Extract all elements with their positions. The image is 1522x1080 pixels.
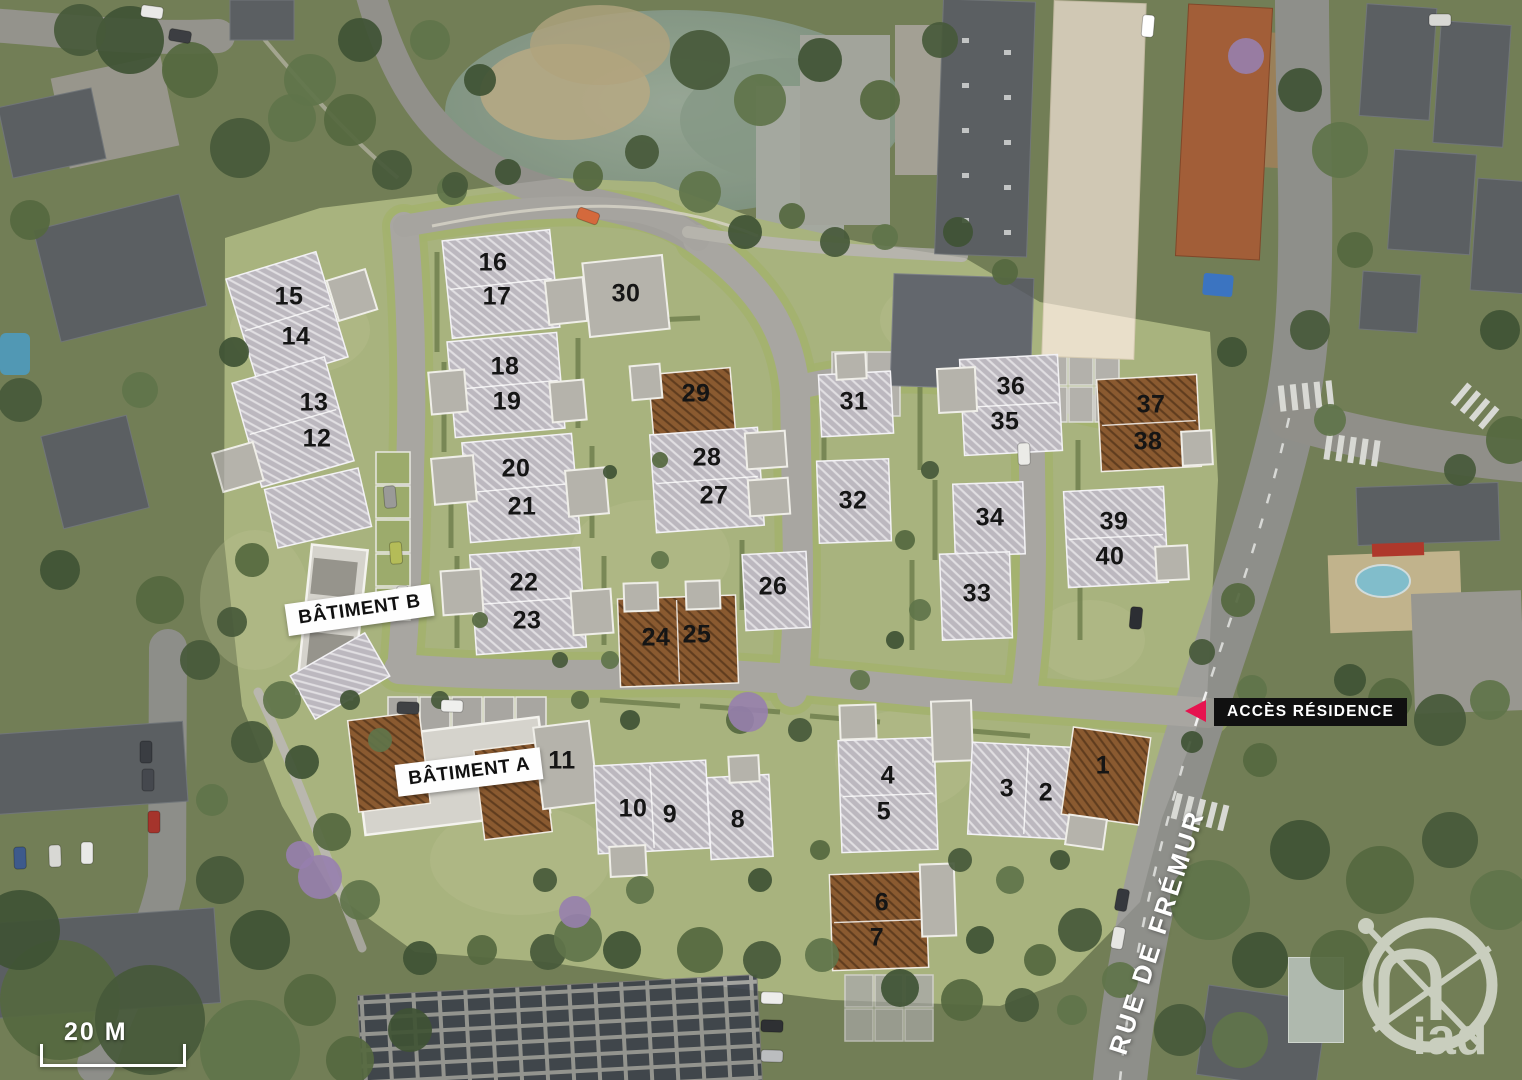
lot-marker-33: 33 bbox=[963, 582, 992, 607]
batiment-b-label: BÂTIMENT B bbox=[284, 584, 434, 636]
lot-marker-31: 31 bbox=[840, 390, 869, 415]
lot-marker-22: 22 bbox=[510, 571, 539, 596]
lot-marker-19: 19 bbox=[493, 390, 522, 415]
lot-marker-12: 12 bbox=[303, 427, 332, 452]
lot-marker-14: 14 bbox=[282, 325, 311, 350]
lot-marker-3: 3 bbox=[1000, 777, 1014, 802]
access-residence-label: ACCÈS RÉSIDENCE bbox=[1214, 698, 1407, 726]
access-arrow-icon bbox=[1185, 700, 1206, 722]
lot-marker-15: 15 bbox=[275, 285, 304, 310]
street-name-label: RUE DE FRÉMUR bbox=[1103, 806, 1211, 1059]
scale-bar-bracket bbox=[40, 1044, 186, 1067]
lot-marker-29: 29 bbox=[682, 382, 711, 407]
lot-marker-34: 34 bbox=[976, 506, 1005, 531]
lot-marker-28: 28 bbox=[693, 446, 722, 471]
lot-marker-25: 25 bbox=[683, 623, 712, 648]
lot-marker-7: 7 bbox=[870, 926, 884, 951]
lot-marker-9: 9 bbox=[663, 803, 677, 828]
lot-marker-6: 6 bbox=[875, 891, 889, 916]
lot-marker-10: 10 bbox=[619, 797, 648, 822]
lot-marker-38: 38 bbox=[1134, 430, 1163, 455]
lot-marker-11: 11 bbox=[548, 749, 575, 774]
lot-marker-2: 2 bbox=[1039, 781, 1053, 806]
lot-marker-8: 8 bbox=[731, 808, 745, 833]
lot-marker-5: 5 bbox=[877, 800, 891, 825]
lot-marker-30: 30 bbox=[612, 282, 641, 307]
lot-marker-21: 21 bbox=[508, 495, 537, 520]
lot-marker-37: 37 bbox=[1137, 393, 1166, 418]
lot-marker-32: 32 bbox=[839, 489, 868, 514]
iad-wordmark: iad bbox=[1412, 1008, 1487, 1066]
lot-marker-1: 1 bbox=[1096, 754, 1110, 779]
lot-marker-36: 36 bbox=[997, 375, 1026, 400]
lot-marker-18: 18 bbox=[491, 355, 520, 380]
lot-marker-39: 39 bbox=[1100, 510, 1129, 535]
lot-marker-4: 4 bbox=[881, 764, 895, 789]
site-plan-aerial-view: 1234567891011121314151617181920212223242… bbox=[0, 0, 1522, 1080]
lot-marker-40: 40 bbox=[1096, 545, 1125, 570]
batiment-a-label: BÂTIMENT A bbox=[395, 747, 544, 797]
lot-marker-13: 13 bbox=[300, 391, 329, 416]
lot-marker-24: 24 bbox=[642, 626, 671, 651]
lot-marker-27: 27 bbox=[700, 484, 729, 509]
lot-marker-35: 35 bbox=[991, 410, 1020, 435]
lot-marker-26: 26 bbox=[759, 575, 788, 600]
scale-bar-label: 20 M bbox=[64, 1018, 128, 1047]
iad-brand-logo: iad bbox=[1338, 888, 1522, 1080]
lot-marker-17: 17 bbox=[483, 285, 512, 310]
lot-marker-16: 16 bbox=[479, 251, 508, 276]
lot-marker-23: 23 bbox=[513, 609, 542, 634]
lot-marker-20: 20 bbox=[502, 457, 531, 482]
